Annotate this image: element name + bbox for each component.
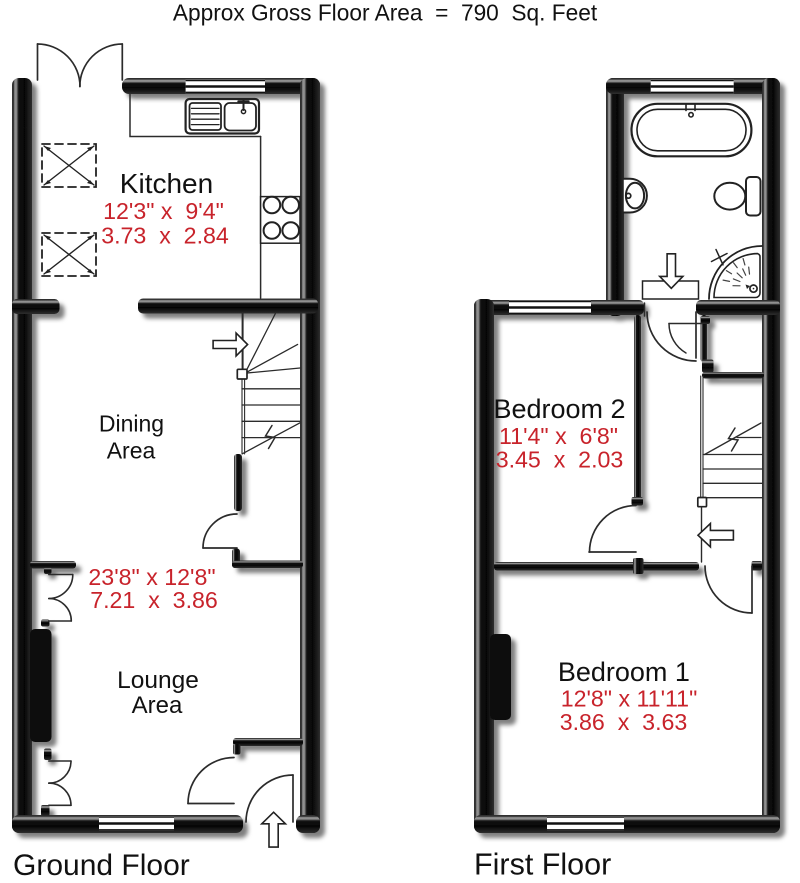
- svg-text:First Floor: First Floor: [474, 848, 611, 879]
- svg-text:Approx Gross Floor Area = 79: Approx Gross Floor Area = 790 Sq. Feet: [173, 0, 598, 25]
- svg-text:Dining: Dining: [99, 411, 164, 437]
- svg-text:Ground Floor: Ground Floor: [13, 849, 190, 878]
- svg-text:Lounge: Lounge: [117, 667, 199, 694]
- svg-text:12'3" x 9'4": 12'3" x 9'4": [103, 198, 224, 224]
- svg-text:11'4" x 6'8": 11'4" x 6'8": [499, 423, 618, 449]
- svg-text:3.73 x 2.84: 3.73 x 2.84: [101, 223, 229, 249]
- svg-text:12'8" x 11'11": 12'8" x 11'11": [561, 686, 698, 712]
- svg-text:Area: Area: [107, 438, 156, 464]
- svg-text:Bedroom 1: Bedroom 1: [558, 657, 690, 687]
- svg-text:3.45 x 2.03: 3.45 x 2.03: [496, 447, 624, 473]
- svg-text:Kitchen: Kitchen: [120, 168, 213, 199]
- svg-text:3.86 x 3.63: 3.86 x 3.63: [560, 709, 688, 735]
- svg-text:Area: Area: [132, 692, 183, 719]
- svg-text:7.21 x 3.86: 7.21 x 3.86: [90, 587, 218, 613]
- svg-text:Bedroom 2: Bedroom 2: [493, 394, 625, 424]
